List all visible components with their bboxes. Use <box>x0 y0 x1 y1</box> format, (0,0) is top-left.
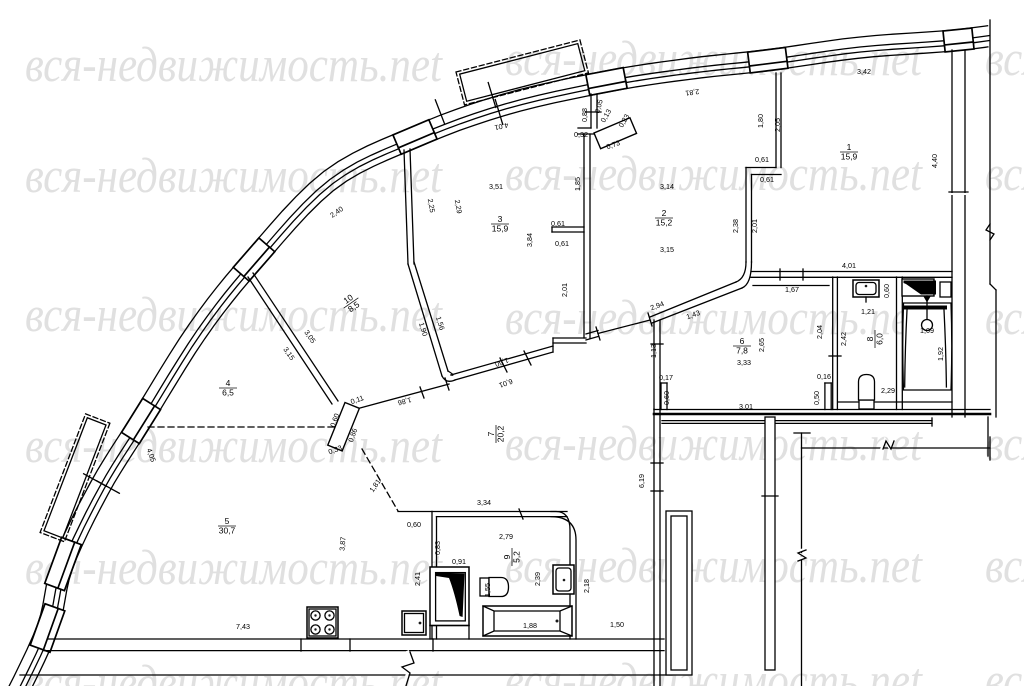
svg-text:вся-недвижимость.net: вся-недвижимость.net <box>25 286 443 342</box>
svg-text:вся-недвижимость.net: вся-недвижимость.net <box>985 537 1024 593</box>
svg-text:1,88: 1,88 <box>523 621 537 630</box>
svg-text:1,67: 1,67 <box>785 285 799 294</box>
svg-text:9: 9 <box>502 554 512 559</box>
svg-text:6: 6 <box>740 336 745 346</box>
svg-text:3,33: 3,33 <box>737 358 751 367</box>
svg-text:1,85: 1,85 <box>573 177 582 191</box>
svg-text:0,50: 0,50 <box>812 391 821 405</box>
svg-text:вся-недвижимость.net: вся-недвижимость.net <box>985 652 1024 686</box>
svg-text:вся-недвижимость.net: вся-недвижимость.net <box>25 417 443 473</box>
svg-text:0,61: 0,61 <box>760 175 774 184</box>
svg-text:5: 5 <box>225 516 230 526</box>
svg-text:2,18: 2,18 <box>582 579 591 593</box>
svg-text:2,04: 2,04 <box>815 325 824 339</box>
svg-text:2,39: 2,39 <box>533 572 542 586</box>
svg-text:0,60: 0,60 <box>407 520 421 529</box>
svg-text:вся-недвижимость.net: вся-недвижимость.net <box>25 36 443 92</box>
svg-text:вся-недвижимость.net: вся-недвижимость.net <box>25 539 443 595</box>
svg-text:1,50: 1,50 <box>610 620 624 629</box>
svg-text:вся-недвижимость.net: вся-недвижимость.net <box>505 652 923 686</box>
svg-text:5,2: 5,2 <box>512 551 522 563</box>
svg-text:1,09: 1,09 <box>920 326 934 335</box>
svg-text:2,41: 2,41 <box>413 572 422 586</box>
svg-text:3: 3 <box>498 214 503 224</box>
svg-text:2,42: 2,42 <box>839 332 848 346</box>
svg-text:30,7: 30,7 <box>219 526 236 536</box>
svg-text:15,2: 15,2 <box>656 218 673 228</box>
svg-text:1,92: 1,92 <box>936 347 945 361</box>
svg-text:7: 7 <box>486 431 496 436</box>
svg-text:4: 4 <box>226 378 231 388</box>
svg-text:2,29: 2,29 <box>881 386 895 395</box>
svg-text:2: 2 <box>662 208 667 218</box>
svg-text:вся-недвижимость.net: вся-недвижимость.net <box>505 145 923 201</box>
svg-text:3,15: 3,15 <box>660 245 674 254</box>
svg-text:3,84: 3,84 <box>525 233 534 247</box>
svg-text:вся-недвижимость.net: вся-недвижимость.net <box>985 415 1024 471</box>
svg-text:0,61: 0,61 <box>755 155 769 164</box>
svg-text:2,65: 2,65 <box>757 338 766 352</box>
svg-text:6,5: 6,5 <box>222 388 234 398</box>
svg-text:20,2: 20,2 <box>496 425 506 442</box>
svg-text:6,0: 6,0 <box>875 333 885 345</box>
svg-text:вся-недвижимость.net: вся-недвижимость.net <box>985 145 1024 201</box>
svg-text:0,91: 0,91 <box>452 557 466 566</box>
svg-text:0,17: 0,17 <box>659 373 673 382</box>
svg-text:15,9: 15,9 <box>492 224 509 234</box>
svg-text:вся-недвижимость.net: вся-недвижимость.net <box>985 30 1024 86</box>
svg-text:3,34: 3,34 <box>477 498 491 507</box>
svg-text:7,43: 7,43 <box>236 622 250 631</box>
svg-text:0,16: 0,16 <box>817 372 831 381</box>
svg-text:6,19: 6,19 <box>637 474 646 488</box>
svg-text:1,80: 1,80 <box>756 114 765 128</box>
svg-text:2,79: 2,79 <box>499 532 513 541</box>
svg-text:4,40: 4,40 <box>930 154 939 168</box>
svg-text:1: 1 <box>847 142 852 152</box>
svg-text:3,51: 3,51 <box>489 182 503 191</box>
svg-text:1,13: 1,13 <box>649 344 658 358</box>
svg-text:3,01: 3,01 <box>739 402 753 411</box>
svg-text:1,21: 1,21 <box>861 307 875 316</box>
svg-text:0,60: 0,60 <box>662 391 671 405</box>
svg-text:2,01: 2,01 <box>560 283 569 297</box>
svg-text:2,38: 2,38 <box>731 219 740 233</box>
svg-text:0,61: 0,61 <box>551 219 565 228</box>
svg-text:4,01: 4,01 <box>842 261 856 270</box>
svg-text:0,88: 0,88 <box>580 108 589 122</box>
svg-text:3,87: 3,87 <box>337 536 347 551</box>
svg-text:8: 8 <box>865 336 875 341</box>
svg-text:вся-недвижимость.net: вся-недвижимость.net <box>25 147 443 203</box>
svg-text:3,14: 3,14 <box>660 182 674 191</box>
svg-text:0,32: 0,32 <box>574 130 588 139</box>
svg-text:15,9: 15,9 <box>841 152 858 162</box>
svg-text:0,60: 0,60 <box>882 284 891 298</box>
svg-text:вся-недвижимость.net: вся-недвижимость.net <box>985 289 1024 345</box>
svg-text:0,83: 0,83 <box>433 541 442 555</box>
svg-text:3,42: 3,42 <box>857 67 871 76</box>
svg-text:0,61: 0,61 <box>555 239 569 248</box>
svg-text:вся-недвижимость.net: вся-недвижимость.net <box>25 654 443 686</box>
svg-text:7,8: 7,8 <box>736 346 748 356</box>
svg-text:2,05: 2,05 <box>773 118 782 132</box>
svg-text:1,55: 1,55 <box>483 583 492 597</box>
svg-text:2,01: 2,01 <box>750 219 759 233</box>
